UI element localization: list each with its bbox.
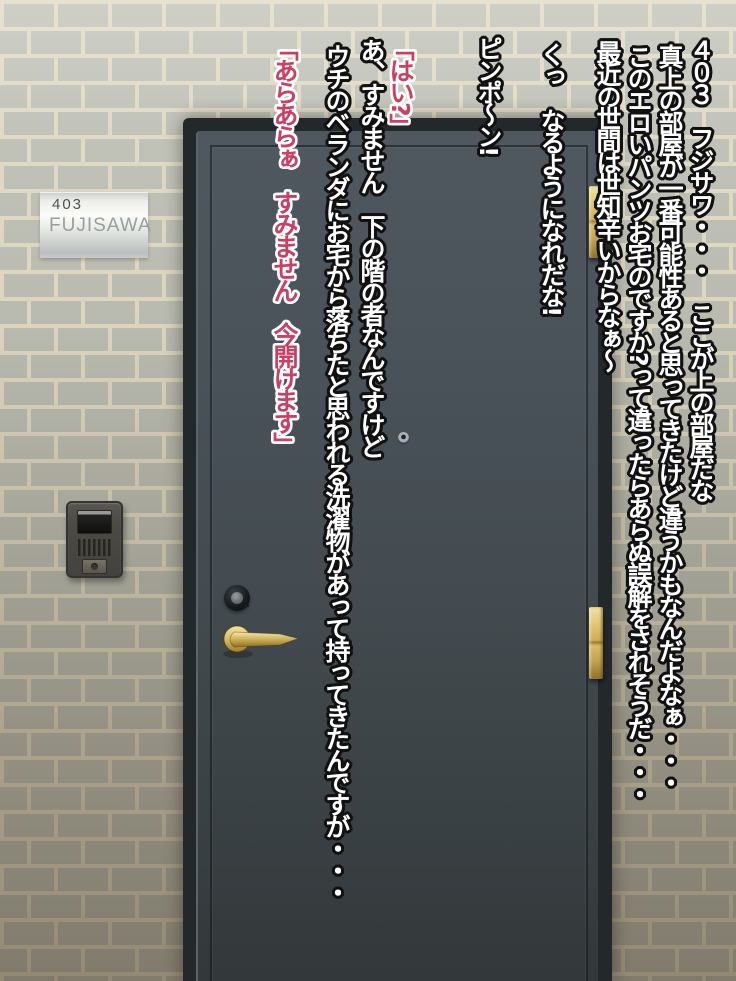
intercom-speaker-grille-icon xyxy=(78,539,111,556)
keyhole-core xyxy=(231,592,243,604)
dialogue-line-4: 最近の世間は世知辛いからなぁ～ xyxy=(592,40,622,370)
dialogue-line-5: くっ なるようになれだな! xyxy=(536,42,566,314)
intercom-call-button xyxy=(82,559,107,574)
dialogue-line-1: ４０３ フジサワ・・・ ここが上の部屋だな xyxy=(685,38,715,500)
sfx-doorbell: ピンポ～ン! xyxy=(473,36,503,154)
dialogue-line-2: 真上の部屋が一番可能性あると思ってきたけど違うかもなんだよなぁ・・・ xyxy=(654,44,684,792)
door-inset-panel xyxy=(210,145,588,981)
speech-line-1: 「はい?」 xyxy=(385,36,415,136)
peephole xyxy=(398,432,409,443)
visual-novel-scene[interactable]: 403 FUJISAWA xyxy=(0,0,736,981)
room-nameplate: 403 FUJISAWA xyxy=(40,192,148,258)
speech-line-2: 「あらあらぁ すみません 今開けます」 xyxy=(269,36,299,454)
dialogue-line-3: このエロいパンツお宅のですか?って違ったらあらぬ誤解をされそうだ・・・ xyxy=(623,44,653,804)
door-hinge-bottom xyxy=(589,607,603,679)
dialogue-line-8: あ、すみません 下の階の者なんですけど xyxy=(356,38,386,456)
dialogue-line-9: ウチのベランダにお宅から落ちたと思われる洗濯物があって持ってきたんですが・・・ xyxy=(321,44,351,902)
nameplate-room-number: 403 xyxy=(52,196,83,213)
handle-lever xyxy=(230,632,298,647)
keyhole-slot xyxy=(239,604,249,607)
door-handle xyxy=(222,618,306,660)
intercom-camera-window xyxy=(77,510,112,534)
nameplate-resident-name: FUJISAWA xyxy=(49,215,152,237)
door-lock-cylinder xyxy=(224,585,250,611)
intercom-unit xyxy=(66,501,123,578)
